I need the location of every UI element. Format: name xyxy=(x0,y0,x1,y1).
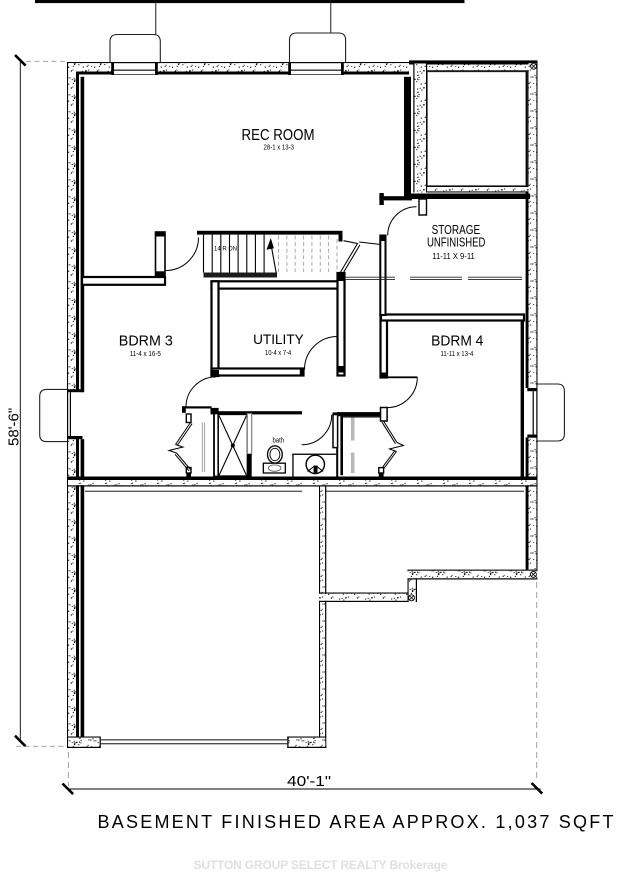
svg-text:BDRM 4: BDRM 4 xyxy=(431,333,483,350)
svg-text:REC ROOM: REC ROOM xyxy=(242,127,315,144)
svg-text:40'-1": 40'-1" xyxy=(287,773,331,790)
svg-text:UNFINISHED: UNFINISHED xyxy=(427,236,485,250)
svg-text:BDRM 3: BDRM 3 xyxy=(119,333,173,350)
svg-text:11-11 X 9-11: 11-11 X 9-11 xyxy=(432,251,475,261)
svg-text:11-4 x 16-5: 11-4 x 16-5 xyxy=(130,349,161,358)
svg-text:bath: bath xyxy=(273,436,285,445)
svg-text:11-11 x 13-4: 11-11 x 13-4 xyxy=(441,349,474,358)
svg-text:UTILITY: UTILITY xyxy=(253,332,304,347)
svg-text:SUTTON GROUP SELECT REALTY B: SUTTON GROUP SELECT REALTY Brokerage xyxy=(194,858,448,872)
svg-text:10-4 x 7-4: 10-4 x 7-4 xyxy=(265,348,291,357)
svg-text:28-1 x 13-3: 28-1 x 13-3 xyxy=(264,143,295,152)
svg-text:58'-6": 58'-6" xyxy=(6,408,23,446)
svg-text:14 R DN: 14 R DN xyxy=(214,245,237,252)
svg-text:BASEMENT FINISHED AREA APPROX.: BASEMENT FINISHED AREA APPROX. 1,037 SQF… xyxy=(98,812,614,832)
